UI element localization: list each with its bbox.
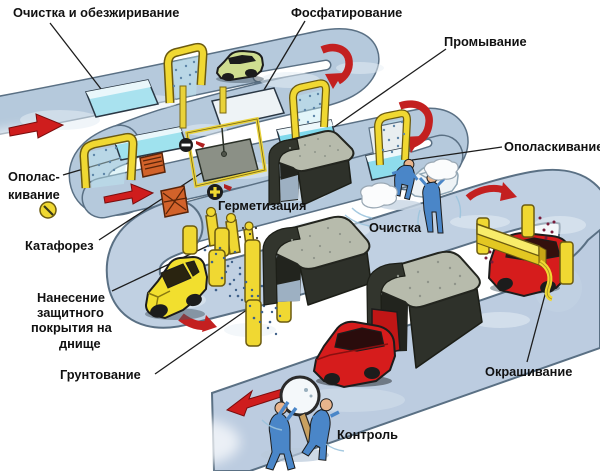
svg-text:Фосфатирование: Фосфатирование (291, 5, 402, 20)
svg-text:Грунтование: Грунтование (60, 367, 141, 382)
svg-text:Промывание: Промывание (444, 34, 527, 49)
svg-text:покрытия на: покрытия на (31, 320, 113, 335)
svg-text:Нанесение: Нанесение (37, 290, 105, 305)
svg-text:Ополас-: Ополас- (8, 169, 60, 184)
svg-text:днище: днище (59, 336, 101, 351)
svg-text:Окрашивание: Окрашивание (485, 364, 572, 379)
svg-text:Герметизация: Герметизация (218, 198, 306, 213)
svg-text:Очистка и обезжиривание: Очистка и обезжиривание (13, 5, 179, 20)
svg-text:Катафорез: Катафорез (25, 238, 94, 253)
svg-text:Контроль: Контроль (337, 427, 398, 442)
svg-text:кивание: кивание (8, 187, 60, 202)
svg-text:Очистка: Очистка (369, 220, 422, 235)
svg-text:защитного: защитного (37, 305, 104, 320)
svg-text:Ополаскивание: Ополаскивание (504, 139, 600, 154)
